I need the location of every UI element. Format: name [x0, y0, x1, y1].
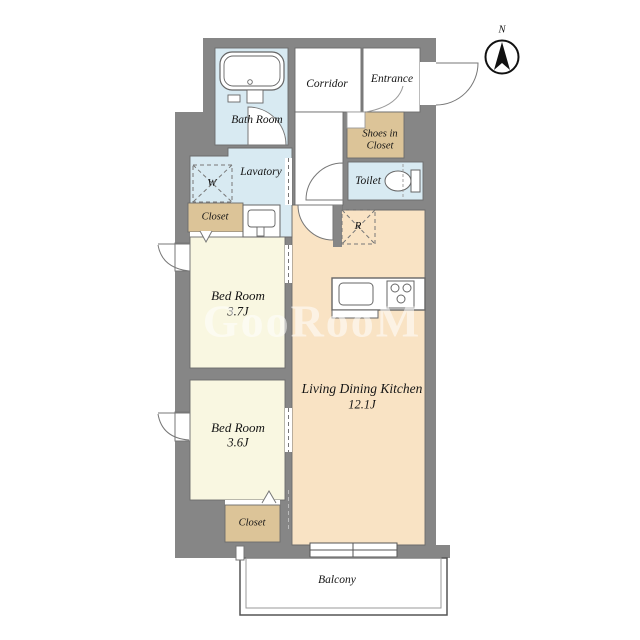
shoes-closet-label-line2: Closet — [367, 140, 394, 151]
kitchen-counter-lip — [332, 310, 378, 318]
washbasin-bowl — [248, 210, 275, 227]
kitchen-sink-icon — [339, 283, 373, 305]
bedroom-2-size: 3.6J — [227, 436, 248, 449]
entrance-label: Entrance — [371, 73, 413, 85]
washbasin-tap — [257, 227, 264, 236]
compass-icon — [486, 41, 519, 74]
lavatory-label: Lavatory — [240, 166, 282, 178]
ldk-size: 12.1J — [348, 398, 375, 411]
wall-pipe — [236, 546, 244, 560]
toilet-tank-icon — [411, 170, 420, 192]
bedroom-1-size: 3.7J — [227, 305, 248, 318]
shower-icon — [228, 95, 240, 102]
bedroom1-window-gap — [175, 243, 190, 271]
entrance-door-arc — [436, 63, 478, 105]
bath-counter — [247, 90, 263, 103]
floor-plan-image: Bath Room Corridor Entrance Shoes in Clo… — [0, 0, 640, 640]
bath-room-label: Bath Room — [231, 114, 282, 126]
room-ldk — [292, 205, 425, 545]
toilet-label: Toilet — [355, 175, 381, 187]
balcony-structure — [240, 558, 447, 615]
compass-north-label: N — [498, 24, 505, 35]
corridor-label: Corridor — [306, 78, 348, 90]
stove-burner-2 — [403, 284, 411, 292]
stove-burner-1 — [391, 284, 399, 292]
fridge-label: R — [355, 221, 362, 233]
floor-plan-svg — [0, 0, 640, 640]
wall-stub-ldk — [333, 205, 342, 247]
bedroom-1-label: Bed Room — [211, 289, 265, 303]
shoes-closet-notch — [347, 112, 365, 128]
bedroom2-window-gap — [175, 412, 190, 441]
closet-lower-label: Closet — [239, 517, 266, 528]
ldk-label: Living Dining Kitchen — [302, 382, 423, 396]
shoes-closet-label-line1: Shoes in — [362, 128, 397, 139]
bathtub-icon — [220, 52, 284, 90]
entrance-door-gap — [420, 62, 436, 105]
closet-upper-label: Closet — [202, 211, 229, 222]
balcony-label: Balcony — [318, 574, 356, 586]
stove-burner-3 — [397, 295, 405, 303]
bedroom-2-label: Bed Room — [211, 421, 265, 435]
bedroom1-door-opening — [285, 245, 292, 283]
closet-upper-opening — [190, 232, 243, 237]
balcony-outer — [240, 558, 447, 615]
toilet-bowl-icon — [385, 171, 411, 191]
washer-label: W — [207, 178, 216, 190]
